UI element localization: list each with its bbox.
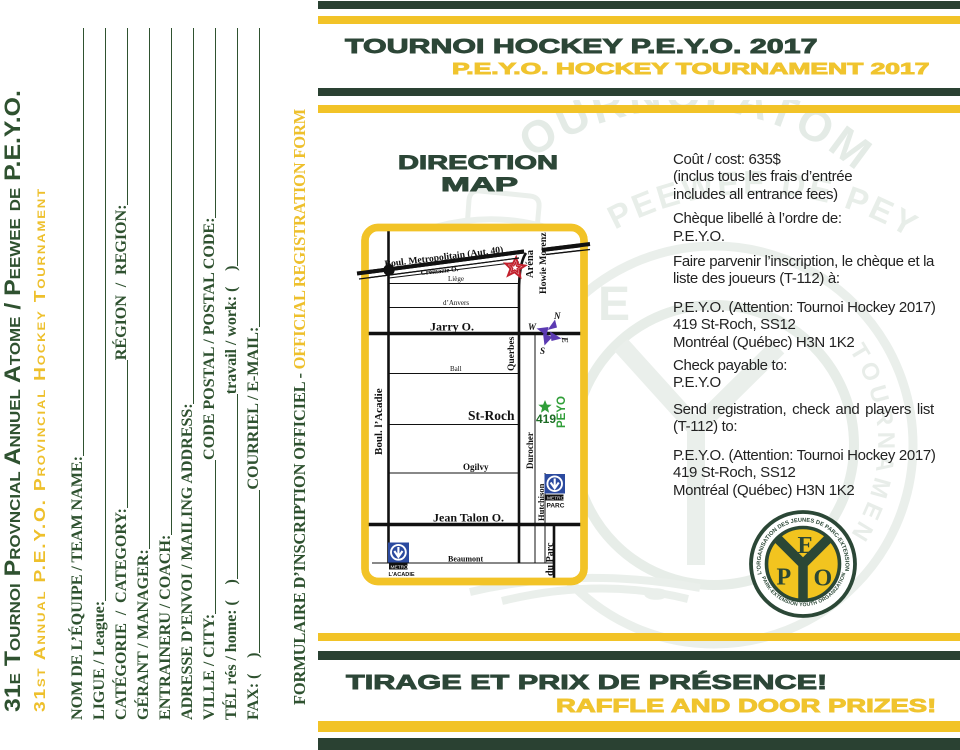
- svg-text:Durocher: Durocher: [525, 432, 535, 469]
- svg-text:Jean Talon O.: Jean Talon O.: [433, 511, 504, 525]
- svg-text:d’Anvers: d’Anvers: [443, 299, 469, 307]
- svg-text:S: S: [540, 346, 545, 356]
- svg-text:St-Roch: St-Roch: [468, 408, 515, 423]
- svg-text:Jarry O.: Jarry O.: [430, 320, 474, 334]
- svg-text:du Parc: du Parc: [545, 542, 556, 576]
- svg-text:METRO: METRO: [391, 565, 409, 571]
- svg-text:Boul. l’Acadie: Boul. l’Acadie: [373, 388, 385, 455]
- svg-text:O: O: [814, 566, 833, 592]
- svg-text:PEYO: PEYO: [556, 396, 568, 428]
- svg-text:Beaumont: Beaumont: [448, 555, 483, 564]
- svg-text:N: N: [553, 311, 561, 321]
- svg-text:METRO: METRO: [547, 496, 565, 502]
- svg-text:Ball: Ball: [450, 365, 462, 373]
- svg-text:E: E: [598, 278, 630, 331]
- svg-text:E: E: [798, 533, 814, 559]
- svg-text:419: 419: [536, 412, 556, 426]
- svg-text:W: W: [528, 322, 537, 332]
- svg-text:Liège: Liège: [448, 275, 464, 283]
- svg-text:PARC: PARC: [547, 503, 565, 510]
- svg-text:P: P: [777, 565, 792, 591]
- svg-text:E: E: [560, 336, 571, 344]
- svg-text:Querbes: Querbes: [507, 336, 517, 371]
- svg-text:Howie Morenz: Howie Morenz: [538, 232, 549, 294]
- svg-text:Ogilvy: Ogilvy: [463, 462, 489, 472]
- svg-text:Aréna: Aréna: [525, 249, 536, 278]
- svg-text:L’ACADIE: L’ACADIE: [389, 572, 415, 578]
